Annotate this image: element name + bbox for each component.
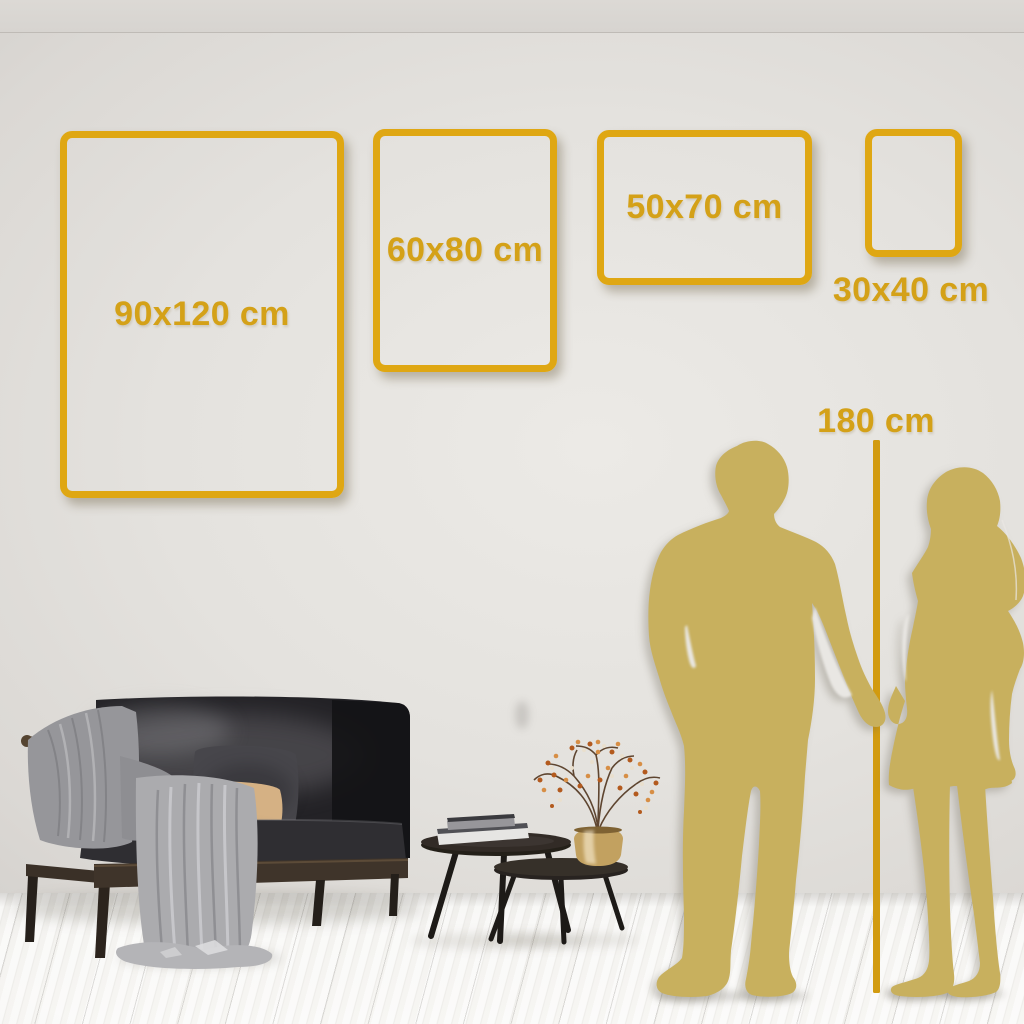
size-label: 50x70 cm <box>626 188 782 227</box>
size-label: 90x120 cm <box>114 295 290 334</box>
size-label-30x40: 30x40 cm <box>831 271 991 310</box>
size-label: 60x80 cm <box>387 231 543 270</box>
woman-silhouette <box>888 467 1024 790</box>
woman-silhouette-legs <box>891 780 954 997</box>
woman-silhouette-legs <box>947 785 1000 997</box>
height-marker-label: 180 cm <box>796 402 956 441</box>
brass-vase <box>574 829 623 866</box>
size-frame-60x80: 60x80 cm <box>373 129 557 372</box>
size-frame-30x40 <box>865 129 962 257</box>
man-silhouette <box>648 441 885 997</box>
branches <box>534 746 660 829</box>
size-guide-infographic: 90x120 cm 60x80 cm 50x70 cm 30x40 cm 180… <box>0 0 1024 1024</box>
size-frame-50x70: 50x70 cm <box>597 130 812 285</box>
size-frame-90x120: 90x120 cm <box>60 131 344 498</box>
